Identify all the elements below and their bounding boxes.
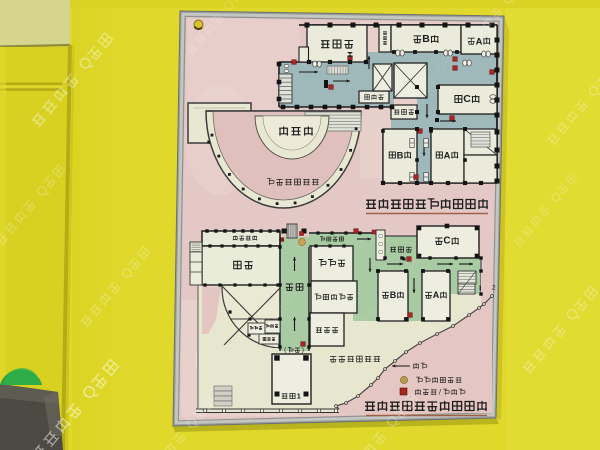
svg-text:A: A xyxy=(433,290,440,300)
svg-text:): ) xyxy=(302,347,304,354)
svg-text:C: C xyxy=(463,93,471,105)
svg-text:B: B xyxy=(397,150,404,161)
svg-text:2: 2 xyxy=(492,285,496,292)
svg-text:A: A xyxy=(476,36,483,47)
svg-text:C: C xyxy=(443,236,450,247)
svg-text:1: 1 xyxy=(297,392,302,401)
svg-text:A: A xyxy=(444,150,451,161)
svg-text:B: B xyxy=(422,33,430,45)
